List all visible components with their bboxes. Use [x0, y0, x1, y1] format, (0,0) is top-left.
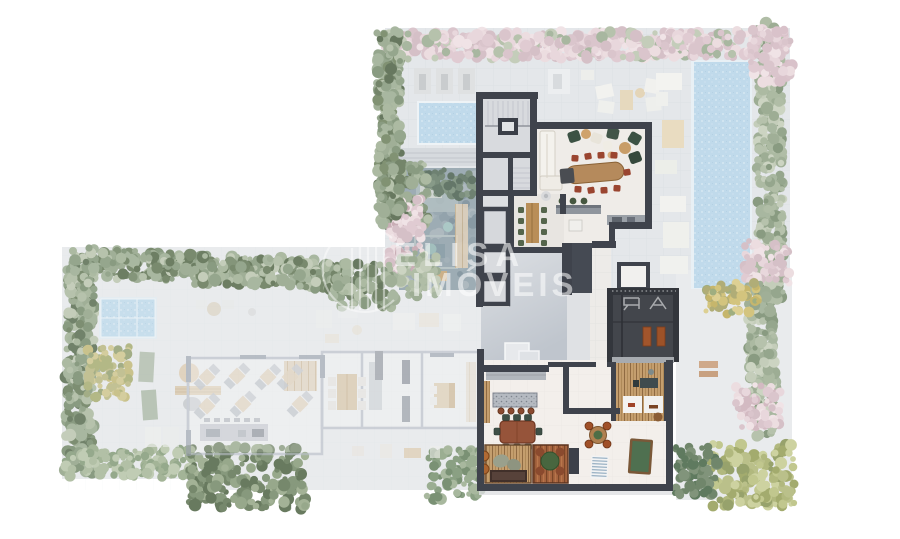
svg-text:IMÓVEIS: IMÓVEIS — [412, 266, 578, 303]
